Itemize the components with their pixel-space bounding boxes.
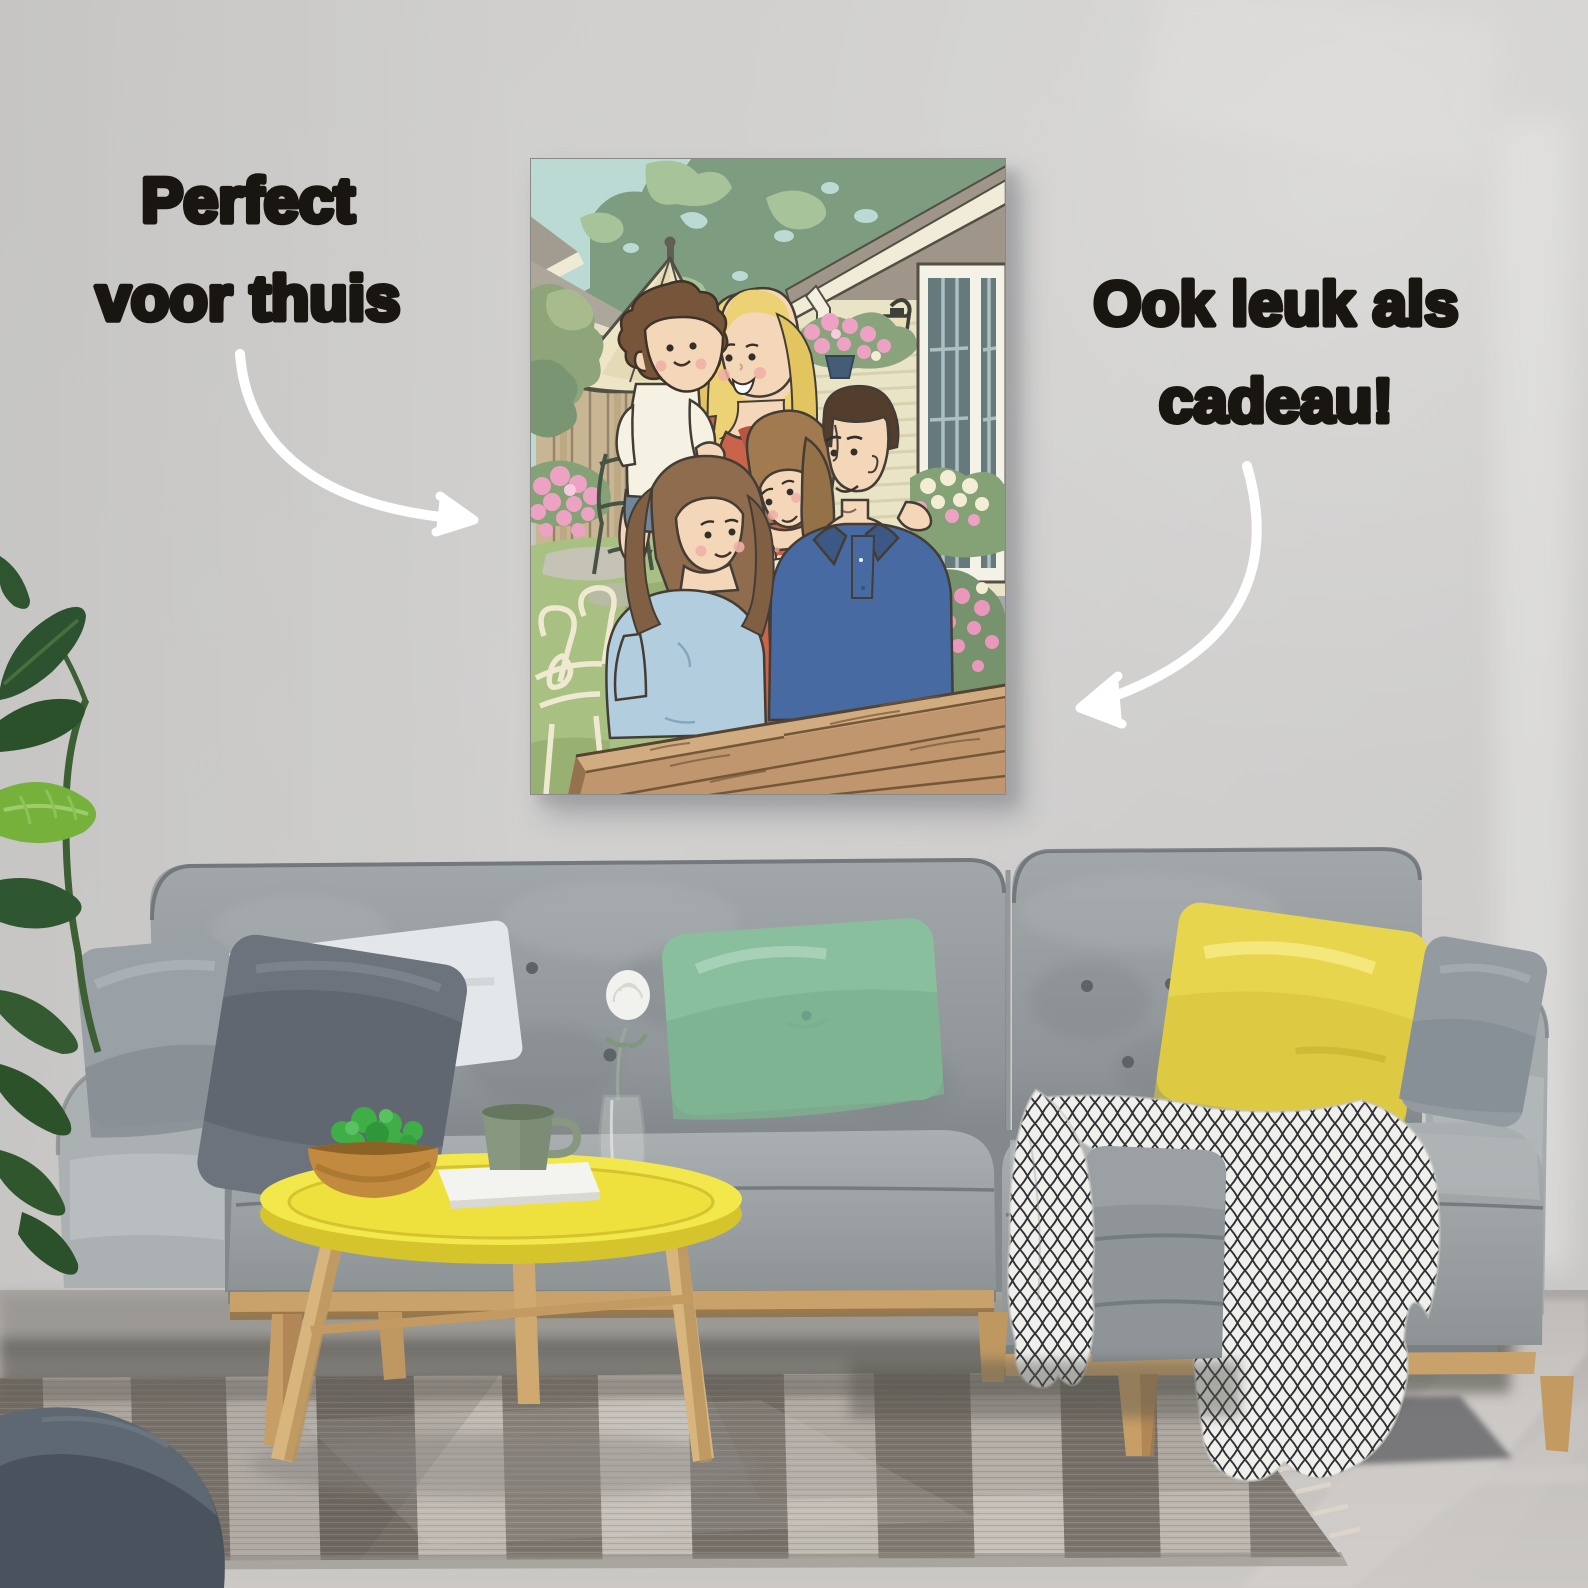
svg-text:cadeau!: cadeau!	[1159, 367, 1393, 436]
svg-text:voor thuis: voor thuis	[96, 264, 401, 334]
svg-text:Perfect: Perfect	[141, 166, 355, 236]
svg-text:Ook leuk als: Ook leuk als	[1093, 270, 1458, 339]
